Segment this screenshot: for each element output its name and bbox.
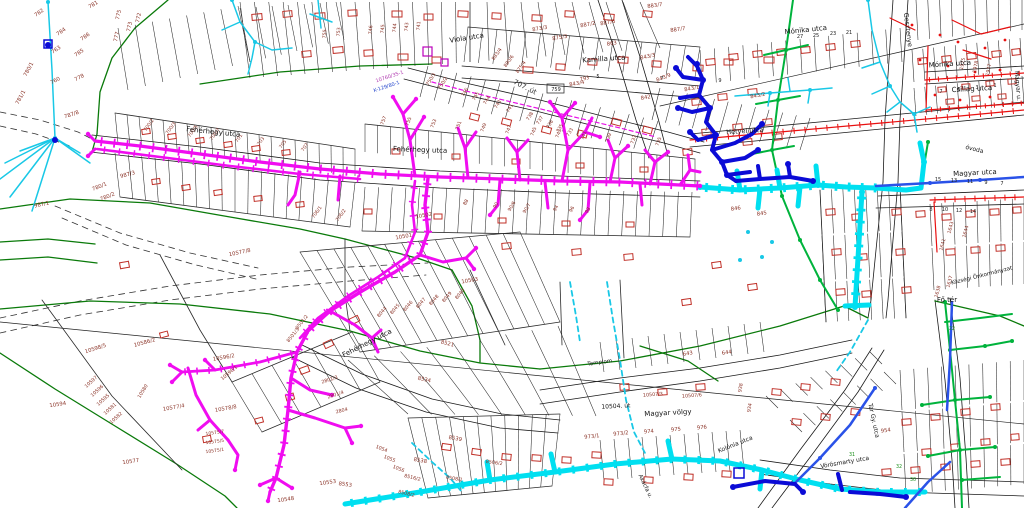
svg-text:733: 733: [565, 127, 575, 138]
svg-text:750/3: 750/3: [425, 72, 437, 87]
svg-text:22: 22: [949, 326, 955, 332]
svg-text:736: 736: [545, 119, 555, 130]
svg-text:760: 760: [50, 76, 62, 86]
svg-text:775: 775: [115, 9, 123, 20]
svg-text:976: 976: [697, 424, 708, 431]
svg-text:Mónika utca: Mónika utca: [784, 24, 827, 36]
svg-text:8: 8: [929, 207, 932, 213]
svg-text:741: 741: [580, 130, 589, 141]
svg-text:10577/8: 10577/8: [228, 248, 251, 259]
svg-text:8534: 8534: [417, 376, 432, 385]
svg-text:10501: 10501: [395, 233, 413, 242]
svg-text:32: 32: [896, 464, 902, 470]
svg-text:700/2: 700/2: [143, 118, 156, 133]
svg-text:8046: 8046: [402, 300, 414, 313]
svg-text:15: 15: [935, 177, 941, 183]
svg-text:1644: 1644: [962, 225, 971, 238]
svg-text:887/2: 887/2: [580, 21, 596, 30]
svg-text:8044: 8044: [376, 306, 388, 319]
svg-text:975: 975: [671, 426, 682, 433]
svg-text:13: 13: [951, 178, 957, 184]
svg-text:Magyar u.: Magyar u.: [1013, 71, 1023, 102]
svg-text:785: 785: [74, 48, 86, 59]
svg-text:706/2: 706/2: [335, 208, 348, 223]
svg-text:Templom: Templom: [586, 358, 613, 368]
svg-text:9: 9: [984, 180, 987, 186]
svg-text:10507/6: 10507/6: [682, 392, 702, 399]
svg-text:90/6: 90/6: [507, 200, 518, 212]
svg-text:10553: 10553: [319, 479, 337, 487]
svg-text:987/1: 987/1: [34, 201, 50, 210]
svg-text:7: 7: [1000, 181, 1003, 187]
svg-text:Vörösmarty utca: Vörösmarty utca: [820, 455, 870, 471]
svg-text:8521: 8521: [440, 339, 455, 348]
svg-text:23: 23: [830, 31, 836, 37]
svg-text:737: 737: [535, 115, 545, 126]
svg-text:14: 14: [970, 209, 976, 215]
svg-text:873/3: 873/3: [532, 25, 548, 34]
svg-text:90/7: 90/7: [522, 202, 533, 214]
svg-text:741: 741: [416, 21, 423, 31]
svg-text:10598/5: 10598/5: [84, 343, 107, 356]
svg-text:753: 753: [430, 118, 439, 129]
svg-text:863: 863: [606, 40, 617, 47]
svg-text:10548: 10548: [277, 496, 295, 504]
svg-text:705: 705: [278, 139, 288, 150]
street-labels: Viola utcaKamilla utca707. útMónika utca…: [186, 12, 1023, 499]
svg-text:Fehérhegy utca: Fehérhegy utca: [393, 145, 448, 155]
svg-text:Községi Önkormányzat: Községi Önkormányzat: [950, 264, 1013, 286]
svg-text:8516/2: 8516/2: [403, 473, 421, 483]
svg-text:707. út: 707. út: [512, 78, 538, 97]
svg-text:9: 9: [718, 78, 721, 84]
svg-text:1055: 1055: [383, 454, 397, 464]
svg-text:780/1: 780/1: [91, 181, 107, 192]
svg-text:753: 753: [336, 27, 343, 37]
svg-text:786: 786: [80, 31, 92, 42]
svg-text:10581: 10581: [103, 402, 118, 417]
svg-text:707: 707: [300, 142, 310, 153]
svg-text:21: 21: [846, 30, 852, 36]
svg-text:743: 743: [493, 99, 503, 110]
svg-text:973/2: 973/2: [613, 430, 629, 438]
svg-text:1978: 1978: [972, 60, 980, 73]
svg-text:843/2: 843/2: [750, 92, 766, 101]
svg-text:10504. út: 10504. út: [601, 402, 631, 411]
svg-text:883/4: 883/4: [491, 47, 504, 62]
svg-text:781: 781: [88, 0, 100, 10]
svg-text:934: 934: [746, 403, 753, 413]
svg-text:Kolónia utca: Kolónia utca: [717, 434, 754, 454]
svg-text:784: 784: [56, 26, 68, 37]
svg-text:30: 30: [910, 477, 916, 483]
svg-text:781/1: 781/1: [15, 89, 27, 105]
svg-text:10577: 10577: [122, 458, 140, 466]
svg-text:759: 759: [551, 87, 561, 93]
svg-text:1054: 1054: [375, 444, 389, 454]
svg-text:644: 644: [721, 349, 732, 356]
svg-text:8045: 8045: [389, 303, 401, 316]
svg-text:10575/1: 10575/1: [205, 447, 224, 456]
buildings: [120, 10, 1022, 485]
svg-text:Gesztenye: Gesztenye: [902, 12, 914, 47]
svg-text:787/8: 787/8: [64, 110, 81, 121]
svg-text:10596: 10596: [90, 384, 105, 399]
svg-text:843/3: 843/3: [640, 53, 656, 62]
svg-text:735: 735: [655, 136, 664, 147]
svg-text:778: 778: [74, 73, 86, 83]
map-viewport[interactable]: 782784786763785778760780/1781/1787/87817…: [0, 0, 1024, 508]
svg-text:747: 747: [505, 124, 514, 135]
svg-text:10503: 10503: [461, 277, 479, 286]
svg-text:780/1: 780/1: [23, 61, 35, 77]
svg-text:Viola utca: Viola utca: [449, 31, 484, 44]
svg-text:10595: 10595: [96, 393, 111, 408]
svg-text:5: 5: [596, 74, 599, 80]
svg-text:845: 845: [756, 210, 767, 217]
svg-text:Magyar utca: Magyar utca: [953, 168, 997, 178]
svg-text:843/1: 843/1: [684, 85, 700, 94]
svg-text:749: 749: [480, 122, 489, 133]
svg-text:Fehérhegy utca: Fehérhegy utca: [341, 327, 393, 359]
svg-text:98: 98: [584, 206, 592, 214]
svg-text:12: 12: [956, 208, 962, 214]
svg-text:746: 746: [368, 25, 375, 35]
svg-text:2801/3: 2801/3: [321, 375, 339, 386]
svg-text:757: 757: [380, 115, 389, 126]
svg-text:703: 703: [256, 136, 266, 147]
svg-text:8049: 8049: [441, 291, 453, 304]
svg-text:94: 94: [552, 204, 560, 212]
svg-text:875/3: 875/3: [552, 34, 568, 43]
svg-text:8538: 8538: [413, 457, 428, 465]
svg-text:974: 974: [644, 428, 655, 435]
svg-text:880/6: 880/6: [503, 54, 516, 69]
svg-text:10594: 10594: [49, 401, 67, 409]
svg-text:10580: 10580: [137, 383, 150, 399]
svg-text:755: 755: [405, 116, 414, 127]
svg-text:737: 737: [630, 134, 639, 145]
svg-text:27: 27: [797, 34, 803, 40]
svg-text:938: 938: [737, 383, 744, 393]
svg-text:8539: 8539: [448, 435, 462, 443]
svg-text:739: 739: [605, 132, 614, 143]
svg-text:842: 842: [640, 94, 651, 102]
svg-text:2804: 2804: [335, 407, 348, 416]
svg-text:10596/2: 10596/2: [212, 353, 235, 363]
svg-text:8501/3: 8501/3: [286, 327, 301, 344]
svg-text:643: 643: [682, 350, 693, 357]
svg-text:10586/2: 10586/2: [133, 337, 156, 348]
green-boundaries: [0, 0, 1024, 508]
svg-text:10597: 10597: [84, 375, 99, 390]
svg-text:óvoda: óvoda: [965, 144, 985, 155]
map-canvas[interactable]: 782784786763785778760780/1781/1787/87817…: [0, 0, 1024, 508]
svg-text:Tar Gy. utca: Tar Gy. utca: [866, 402, 880, 439]
svg-text:25: 25: [813, 33, 819, 39]
svg-text:1: 1: [993, 83, 996, 89]
svg-text:7: 7: [939, 89, 942, 95]
svg-text:883/7: 883/7: [647, 2, 663, 10]
svg-text:10578/8: 10578/8: [214, 404, 237, 414]
svg-text:745: 745: [380, 24, 387, 34]
svg-text:10582: 10582: [109, 411, 124, 426]
svg-text:Magyar völgy: Magyar völgy: [644, 408, 692, 418]
svg-text:Fő tér: Fő tér: [937, 295, 957, 304]
svg-text:973/1: 973/1: [584, 433, 600, 441]
svg-text:8040: 8040: [454, 288, 466, 301]
svg-text:2801/4: 2801/4: [327, 390, 345, 401]
svg-text:10507/3: 10507/3: [643, 391, 663, 398]
blue-symbols: [44, 40, 744, 478]
royal-blue-lines: [795, 177, 1024, 508]
svg-text:954: 954: [880, 427, 891, 434]
svg-text:751: 751: [455, 120, 464, 131]
svg-text:1056: 1056: [392, 464, 406, 474]
svg-text:887/7: 887/7: [670, 26, 686, 34]
svg-text:743: 743: [404, 22, 411, 32]
svg-text:88: 88: [462, 198, 470, 206]
svg-text:10: 10: [942, 207, 948, 213]
svg-text:96: 96: [568, 205, 576, 213]
svg-text:738: 738: [525, 111, 535, 122]
svg-text:746: 746: [460, 87, 470, 98]
svg-text:987/3: 987/3: [120, 170, 136, 180]
svg-text:744: 744: [392, 23, 399, 33]
svg-text:10575/5: 10575/5: [205, 438, 224, 447]
svg-text:843/4: 843/4: [569, 80, 586, 89]
svg-text:782: 782: [34, 8, 46, 19]
svg-text:755: 755: [322, 29, 329, 39]
svg-text:11: 11: [967, 179, 973, 185]
svg-text:Csillag utca: Csillag utca: [951, 84, 992, 94]
svg-text:846: 846: [730, 205, 741, 212]
svg-text:10575/7: 10575/7: [205, 429, 224, 438]
svg-text:843/9: 843/9: [655, 72, 671, 83]
svg-text:Hetyei utca: Hetyei utca: [726, 126, 764, 137]
svg-text:8553: 8553: [338, 481, 352, 489]
svg-text:745: 745: [530, 126, 539, 137]
svg-text:10577/4: 10577/4: [162, 403, 185, 413]
